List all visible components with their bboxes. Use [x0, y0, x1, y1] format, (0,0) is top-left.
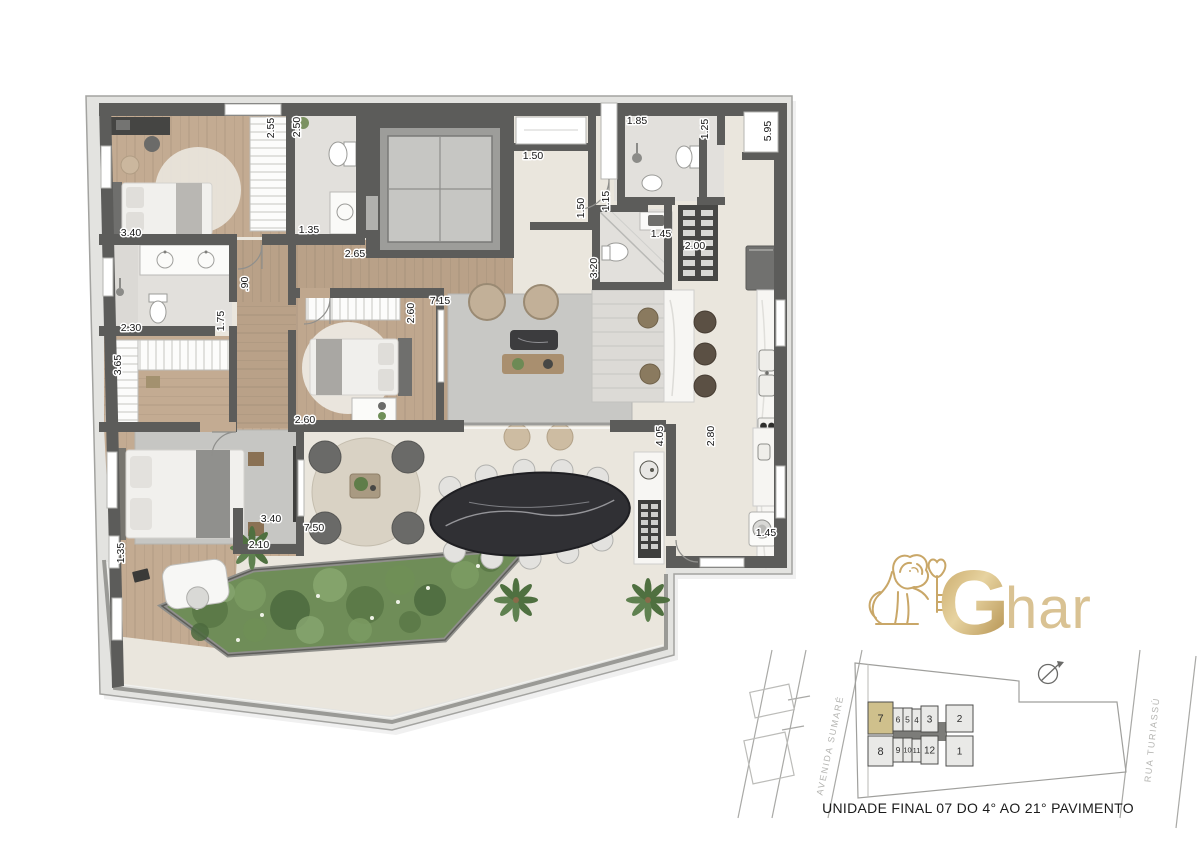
chair — [638, 308, 658, 328]
sink — [759, 375, 775, 396]
bench — [146, 376, 160, 388]
nightstand — [248, 452, 264, 466]
elevator-core — [366, 103, 514, 258]
island-counter — [664, 290, 694, 402]
dimension-label: 1.50 — [575, 198, 587, 219]
stool — [694, 343, 716, 365]
logo-text-har: har — [1005, 576, 1092, 641]
floor-plan: 2.552.503.401.352.65.901.752.303.652.607… — [86, 96, 796, 735]
bowl — [543, 359, 553, 369]
site-unit-number: 7 — [877, 713, 883, 725]
plant — [354, 477, 368, 491]
dimension-label: 1.35 — [299, 224, 320, 236]
palm-plant — [626, 578, 670, 622]
dimension-label: 2.80 — [705, 426, 717, 447]
door-gap — [200, 422, 236, 432]
chair — [640, 364, 660, 384]
sink — [642, 175, 662, 191]
double-vanity — [140, 245, 232, 275]
palm-plant — [494, 578, 538, 622]
dimension-label: 2.30 — [121, 322, 142, 334]
dining-chair — [392, 441, 424, 473]
coffee-machine — [640, 461, 658, 479]
dining-chair — [392, 512, 424, 544]
dimension-label: 2.10 — [249, 539, 270, 551]
king-bed — [112, 448, 244, 540]
site-unit-number: 11 — [913, 746, 921, 755]
site-unit-number: 3 — [927, 715, 933, 726]
street-label: AVENIDA SUMARÉ — [815, 695, 846, 797]
dimension-label: 3.40 — [261, 513, 282, 525]
site-unit-number: 9 — [896, 745, 901, 755]
dimension-label: 2.65 — [345, 248, 366, 260]
stool — [694, 375, 716, 397]
dimension-label: 2.55 — [265, 118, 277, 139]
street-labels: AVENIDA SUMARÉRUA TURIASSÚ — [815, 695, 1162, 797]
toilet — [150, 301, 166, 323]
site-unit-number: 2 — [957, 714, 963, 725]
side-cabinet — [352, 398, 396, 422]
fridge — [746, 246, 776, 290]
site-unit-number: 12 — [924, 746, 936, 757]
bar-counter — [634, 452, 664, 564]
dimension-label: 2.60 — [405, 303, 417, 324]
dimension-label: 3.40 — [121, 227, 142, 239]
dimension-label: 1.15 — [600, 191, 612, 212]
site-unit-number: 5 — [905, 715, 910, 725]
dimension-label: 1.75 — [215, 311, 227, 332]
lion-key-icon — [870, 555, 946, 624]
dimension-label: 1.35 — [115, 543, 127, 564]
pouf — [121, 156, 139, 174]
site-unit-number: 1 — [957, 747, 963, 758]
armchair — [469, 284, 505, 320]
single-bed — [310, 338, 412, 396]
coffee-table-stone — [510, 330, 558, 350]
dining-chair — [309, 441, 341, 473]
site-unit-number: 8 — [877, 746, 883, 758]
desk-chair — [144, 136, 160, 152]
site-plan: 765432891011121 AVENIDA SUMARÉRUA TURIAS… — [738, 650, 1196, 828]
coffee-table-wood — [502, 354, 564, 374]
toilet — [329, 142, 347, 166]
dimension-label: 1.25 — [699, 119, 711, 140]
dimension-label: .90 — [239, 277, 251, 292]
logo-letter-g: G — [938, 552, 1010, 654]
dimension-label: 1.45 — [651, 228, 672, 240]
street-label: RUA TURIASSÚ — [1143, 697, 1162, 783]
dimension-label: 7.50 — [304, 522, 325, 534]
stool — [694, 311, 716, 333]
floor-plan-canvas: 2.552.503.401.352.65.901.752.303.652.607… — [0, 0, 1200, 848]
sink — [759, 350, 775, 371]
plant — [512, 358, 524, 370]
armchair — [524, 285, 558, 319]
utility-sink — [758, 444, 770, 460]
dimension-label: 2.00 — [685, 240, 706, 252]
brand-logo: G har — [870, 552, 1092, 654]
dimension-label: 3.20 — [588, 258, 600, 279]
site-unit-number: 6 — [896, 715, 901, 725]
dimension-label: 2.50 — [291, 117, 303, 138]
dimension-label: 3.65 — [112, 355, 124, 376]
dimension-label: 4.05 — [654, 426, 666, 447]
dimension-label: 1.45 — [756, 527, 777, 539]
dimension-label: 1.85 — [627, 115, 648, 127]
avenida-sumare-road — [738, 650, 862, 818]
site-plan-caption: UNIDADE FINAL 07 DO 4° AO 21° PAVIMENTO — [822, 800, 1134, 816]
marketing-floor-plan-page: 2.552.503.401.352.65.901.752.303.652.607… — [0, 0, 1200, 848]
dimension-label: 7.15 — [430, 295, 451, 307]
dimension-label: 1.50 — [523, 150, 544, 162]
site-unit-number: 10 — [903, 746, 911, 755]
site-unit-number: 4 — [914, 716, 919, 725]
toilet — [676, 146, 692, 168]
dimension-label: 2.60 — [295, 414, 316, 426]
dimension-label: 5.95 — [762, 121, 774, 142]
north-arrow-icon — [1039, 661, 1065, 684]
door-gap — [300, 288, 330, 298]
